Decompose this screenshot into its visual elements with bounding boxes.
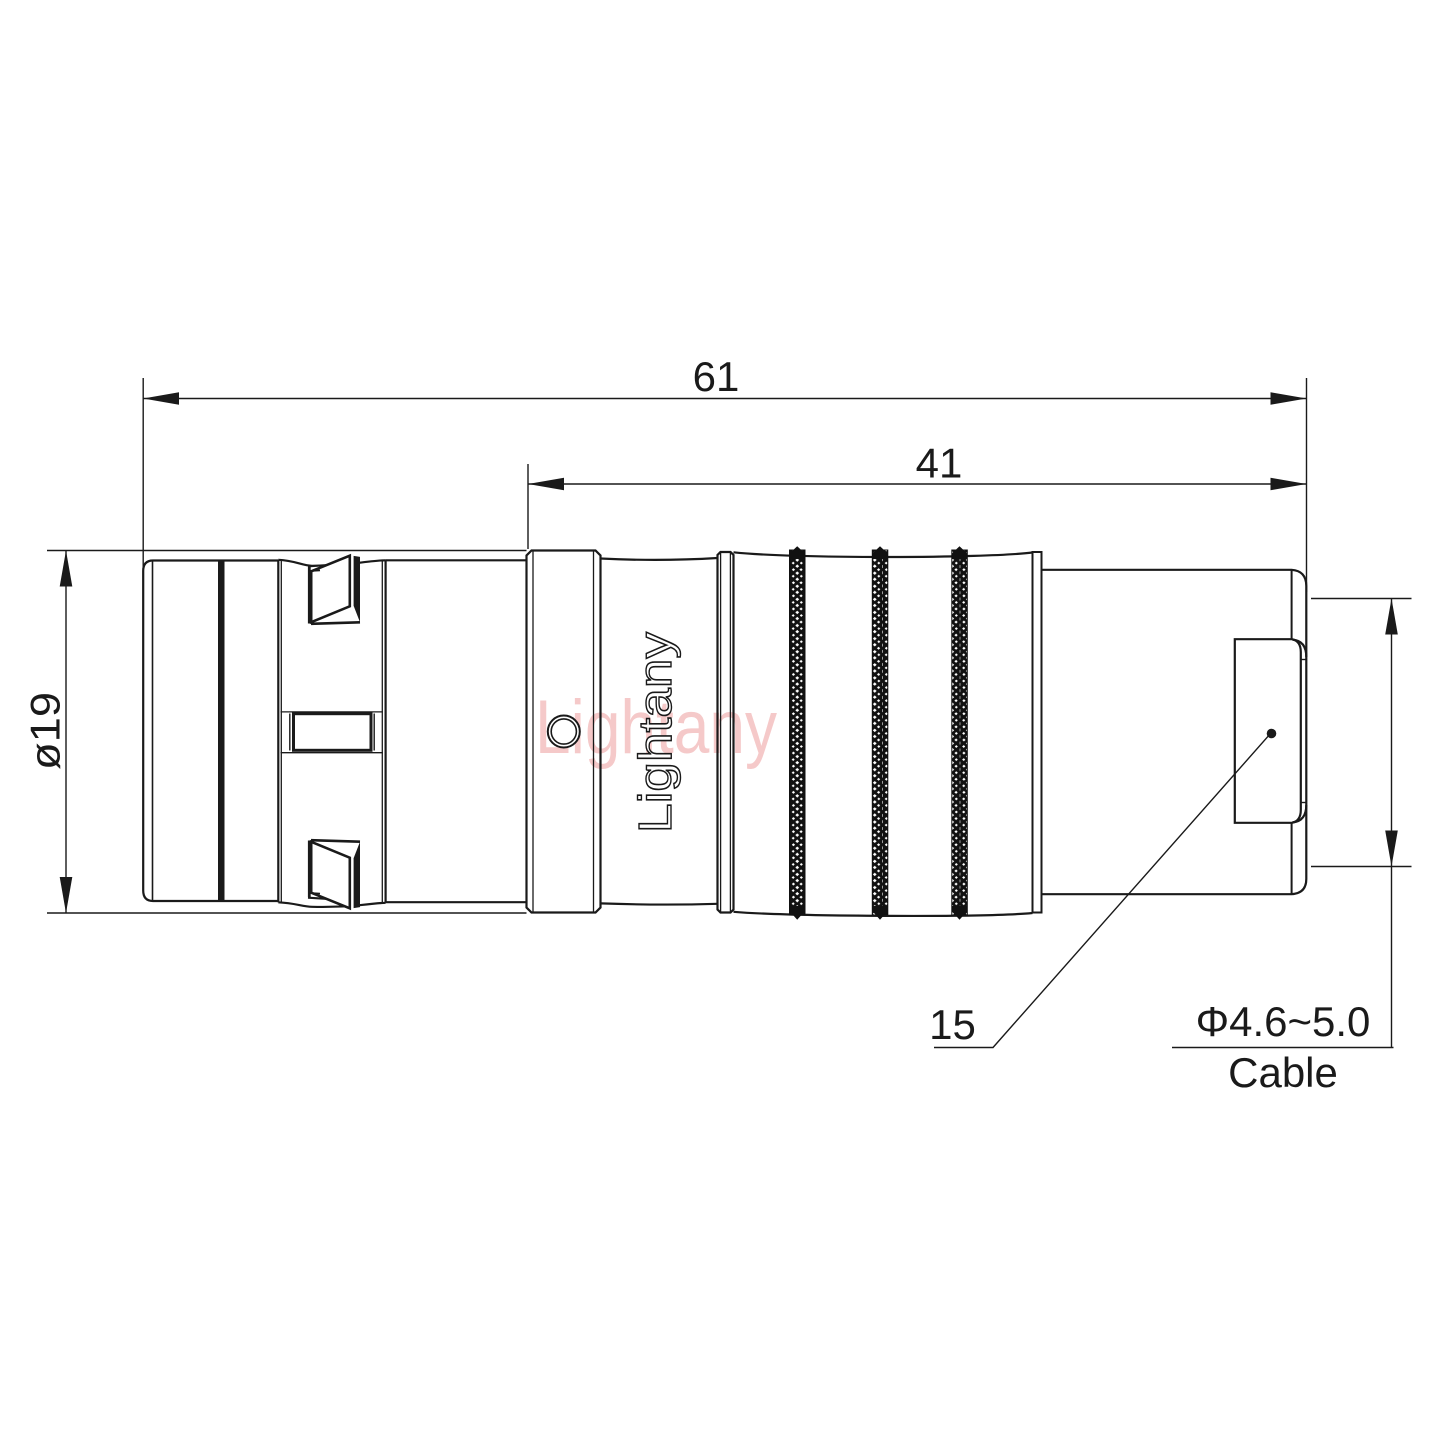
svg-text:61: 61 bbox=[693, 353, 740, 400]
svg-text:ø19: ø19 bbox=[22, 692, 69, 770]
svg-text:Φ4.6~5.0: Φ4.6~5.0 bbox=[1196, 998, 1371, 1045]
svg-text:41: 41 bbox=[916, 440, 963, 487]
svg-text:15: 15 bbox=[929, 1001, 976, 1048]
svg-text:Lightany: Lightany bbox=[629, 632, 681, 833]
svg-text:Cable: Cable bbox=[1228, 1049, 1338, 1096]
